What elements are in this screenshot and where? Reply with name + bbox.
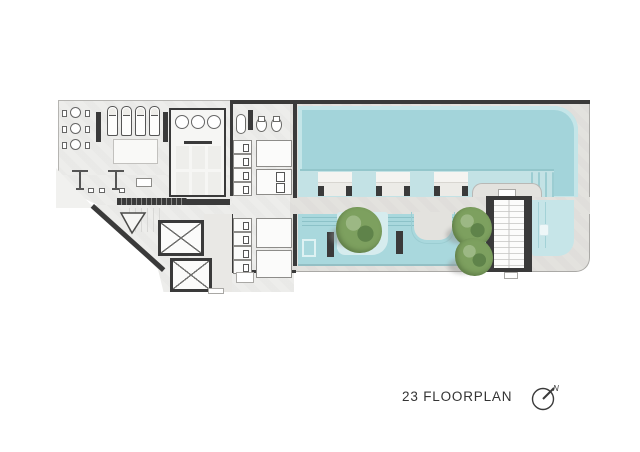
spa-chair (191, 115, 205, 129)
spa-mat (176, 146, 189, 169)
core-wall-east-upper (293, 104, 297, 198)
stair-direction-triangle (118, 210, 148, 236)
stall-toilet (243, 222, 249, 230)
lounger-foot (376, 186, 382, 196)
north-letter: N (553, 384, 559, 393)
pool-ladder (539, 224, 549, 236)
elevator-shaft (170, 258, 212, 292)
lounger-headrest (123, 108, 130, 116)
stair-flight (494, 200, 524, 268)
wall-fin (96, 112, 101, 142)
spa-chair (175, 115, 189, 129)
lounger-foot (434, 186, 440, 196)
elevator-shaft (158, 220, 204, 256)
chair (85, 126, 90, 133)
round-table (70, 123, 81, 134)
bar-umbrella (72, 170, 88, 192)
wc-stall (233, 232, 252, 246)
lounger-foot (346, 186, 352, 196)
spa-mat (192, 172, 205, 195)
lounger-headrest (137, 108, 144, 116)
stall-toilet (243, 172, 249, 180)
wc-stall (233, 182, 252, 196)
round-table (70, 107, 81, 118)
round-table (70, 139, 81, 150)
sun-lounger (121, 106, 132, 136)
north-perimeter-wall (230, 100, 590, 104)
core-wall-east-lower (293, 214, 297, 266)
stair-exit-tab (504, 272, 518, 279)
wc-stall (233, 140, 252, 154)
cafe-table-set (62, 138, 92, 152)
lounger-backrest (376, 172, 410, 183)
toilet (271, 118, 282, 132)
changing-room (256, 169, 292, 195)
partition-wall (248, 110, 253, 130)
spa-door-wall (184, 141, 212, 144)
stall-toilet (243, 236, 249, 244)
lounger-headrest (109, 108, 116, 116)
stall-toilet (243, 144, 249, 152)
umbrella-stem (115, 172, 117, 188)
bar-stool (119, 188, 125, 193)
lounger-backrest (318, 172, 352, 183)
wc-stall (233, 168, 252, 182)
lounge-rug (113, 139, 158, 164)
locker (276, 172, 285, 182)
cafe-table-set (62, 122, 92, 136)
north-arrow-icon: N (530, 383, 560, 413)
wall-fin (163, 112, 168, 142)
wc-stall (233, 246, 252, 260)
spa-mat (192, 146, 205, 169)
chair (62, 142, 67, 149)
lounger-backrest (434, 172, 468, 183)
cafe-table-set (62, 106, 92, 120)
spa-mat (176, 172, 189, 195)
umbrella-base (76, 188, 84, 190)
shower-room (256, 218, 292, 248)
chair (62, 126, 67, 133)
stall-toilet (243, 158, 249, 166)
sun-lounger (149, 106, 160, 136)
bar-stool (99, 188, 105, 193)
sun-lounger (107, 106, 118, 136)
bathtub (236, 114, 246, 134)
tree (455, 238, 493, 276)
lounger-foot (318, 186, 324, 196)
stall-toilet (243, 250, 249, 258)
chair (85, 142, 90, 149)
floorplan-canvas: 23 FLOORPLAN N (0, 0, 640, 452)
umbrella-stem (79, 172, 81, 188)
stair-core-wall-right (524, 196, 532, 272)
spa-room (169, 108, 226, 197)
lounger-foot (404, 186, 410, 196)
in-pool-lounger (376, 172, 410, 196)
pool-step-line (552, 172, 554, 198)
stall-toilet (243, 186, 249, 194)
counter-box (136, 178, 152, 187)
lounger-headrest (151, 108, 158, 116)
stall-toilet (243, 264, 249, 272)
in-pool-lounger (434, 172, 468, 196)
spa-chair (207, 115, 221, 129)
hatched-wall (117, 198, 187, 205)
pool-entry-step (302, 239, 316, 257)
locker (276, 183, 285, 193)
lobby-exit-tab (208, 288, 224, 294)
shower-room (256, 140, 292, 167)
pool-step-line (545, 172, 547, 198)
interior-wall (185, 199, 230, 205)
lounger-foot (462, 186, 468, 196)
tree (336, 207, 382, 253)
page-title: 23 FLOORPLAN (402, 389, 512, 404)
chair (85, 110, 90, 117)
wc-stall (233, 218, 252, 232)
changing-room (256, 250, 292, 278)
in-pool-lounger (318, 172, 352, 196)
chair (62, 110, 67, 117)
bar-stool (88, 188, 94, 193)
pool-bench-wall (396, 231, 403, 254)
sun-lounger (135, 106, 146, 136)
core-exit-tab (236, 272, 254, 283)
toilet (256, 118, 267, 132)
spa-mat (208, 146, 221, 169)
spa-mat (208, 172, 221, 195)
wc-stall (233, 154, 252, 168)
